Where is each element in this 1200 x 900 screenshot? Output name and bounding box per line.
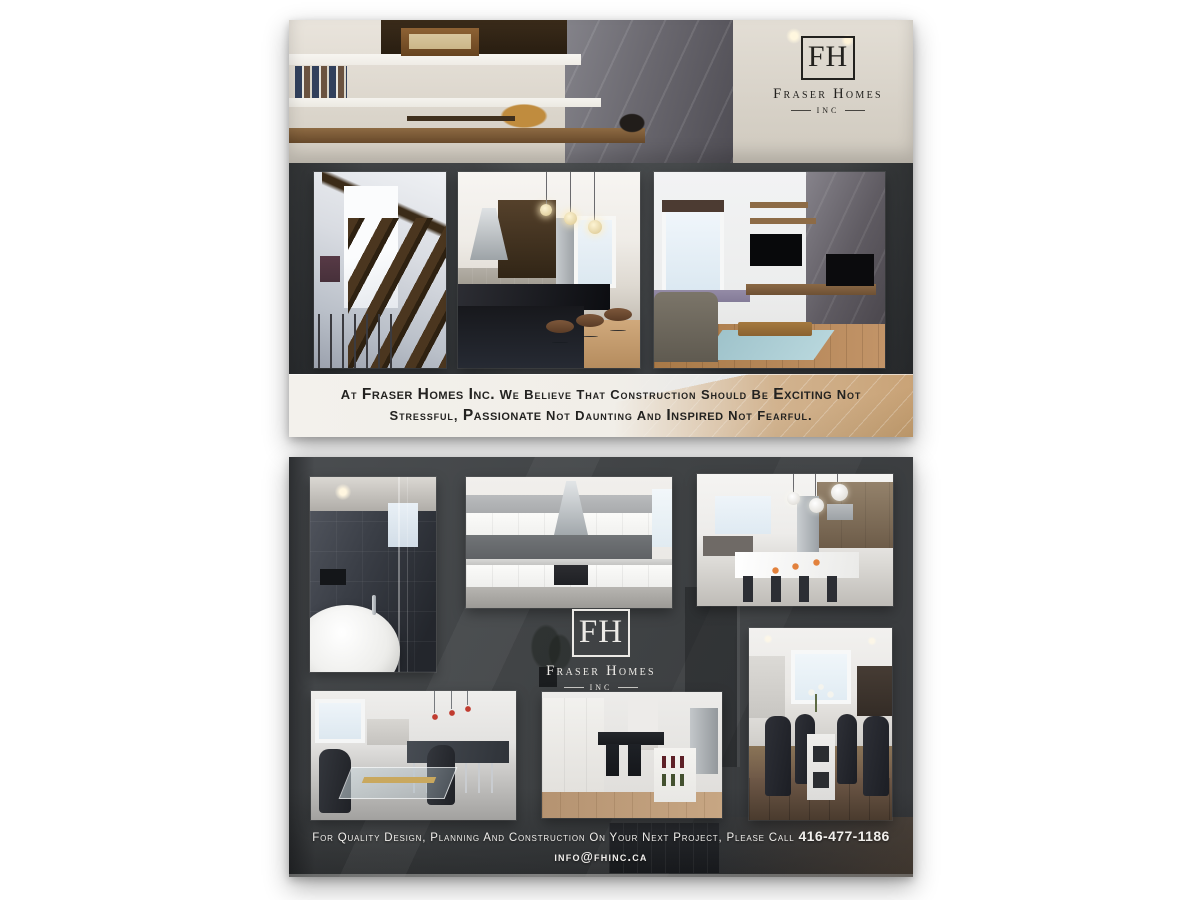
range-hood-shape: [470, 208, 508, 260]
glass-table-shape: [339, 767, 458, 799]
table-runner-shape: [362, 777, 436, 783]
range-hood-shape: [554, 481, 588, 535]
fh-monogram-box: FH: [801, 36, 855, 80]
brand-logo-back: FH Fraser Homes INC: [526, 609, 676, 692]
bathtub-shape: [310, 605, 400, 672]
bar-stool-shape: [576, 314, 604, 327]
fh-monogram: FH: [579, 616, 623, 649]
table-base-shape: [807, 734, 835, 800]
fh-monogram-box: FH: [572, 609, 630, 657]
photo-bathroom: [310, 477, 436, 672]
front-gallery: [289, 163, 913, 374]
brand-name: Fraser Homes: [546, 663, 656, 680]
fh-monogram: FH: [808, 42, 848, 72]
rule-right: [845, 110, 865, 111]
contact-footer: For Quality Design, Planning And Constru…: [289, 828, 913, 865]
photo-staircase: [314, 172, 446, 368]
pendant-light: [564, 212, 577, 225]
tagline-band: At Fraser Homes Inc. We Believe That Con…: [289, 374, 913, 437]
card-bottom-edge: [289, 874, 913, 877]
pendant-light: [540, 204, 552, 216]
flyer-back: FH Fraser Homes INC For Quality Design,: [289, 457, 913, 877]
photo-dining-chairs: [749, 628, 892, 820]
bar-stool-shape: [604, 308, 632, 321]
brand-suffix: INC: [791, 106, 866, 115]
design-canvas: FH Fraser Homes INC: [0, 0, 1200, 900]
photo-kitchen-bar: [458, 172, 640, 368]
rule-left: [564, 687, 584, 688]
photo-kitchen-wine: [542, 692, 722, 818]
contact-line: For Quality Design, Planning And Constru…: [289, 828, 913, 847]
photo-living-room: [654, 172, 885, 368]
bar-stool-shape: [546, 320, 574, 333]
brand-suffix-text: INC: [590, 683, 613, 692]
dining-chair-shape: [863, 716, 889, 796]
tagline-text: At Fraser Homes Inc. We Believe That Con…: [289, 374, 913, 426]
sofa-shape: [654, 292, 718, 362]
coffee-table-shape: [738, 322, 812, 336]
contact-email: info@fhinc.ca: [289, 849, 913, 865]
pendant-globe: [787, 492, 800, 505]
rule-left: [791, 110, 811, 111]
dining-chair-shape: [837, 714, 857, 784]
pendant-globe: [809, 498, 824, 513]
brand-name: Fraser Homes: [773, 86, 883, 103]
brand-logo-front: FH Fraser Homes INC: [767, 36, 889, 115]
flyer-front: FH Fraser Homes INC: [289, 20, 913, 437]
faucet-shape: [372, 595, 376, 615]
dining-chair-shape: [765, 716, 791, 796]
photo-kitchen-white: [466, 477, 672, 608]
brand-suffix: INC: [564, 683, 639, 692]
photo-kitchen-pendants: [697, 474, 893, 606]
brand-suffix-text: INC: [817, 106, 840, 115]
photo-dining-glass: [311, 691, 516, 820]
pendant-globe: [831, 484, 848, 501]
rule-right: [618, 687, 638, 688]
pendant-light: [588, 220, 602, 234]
